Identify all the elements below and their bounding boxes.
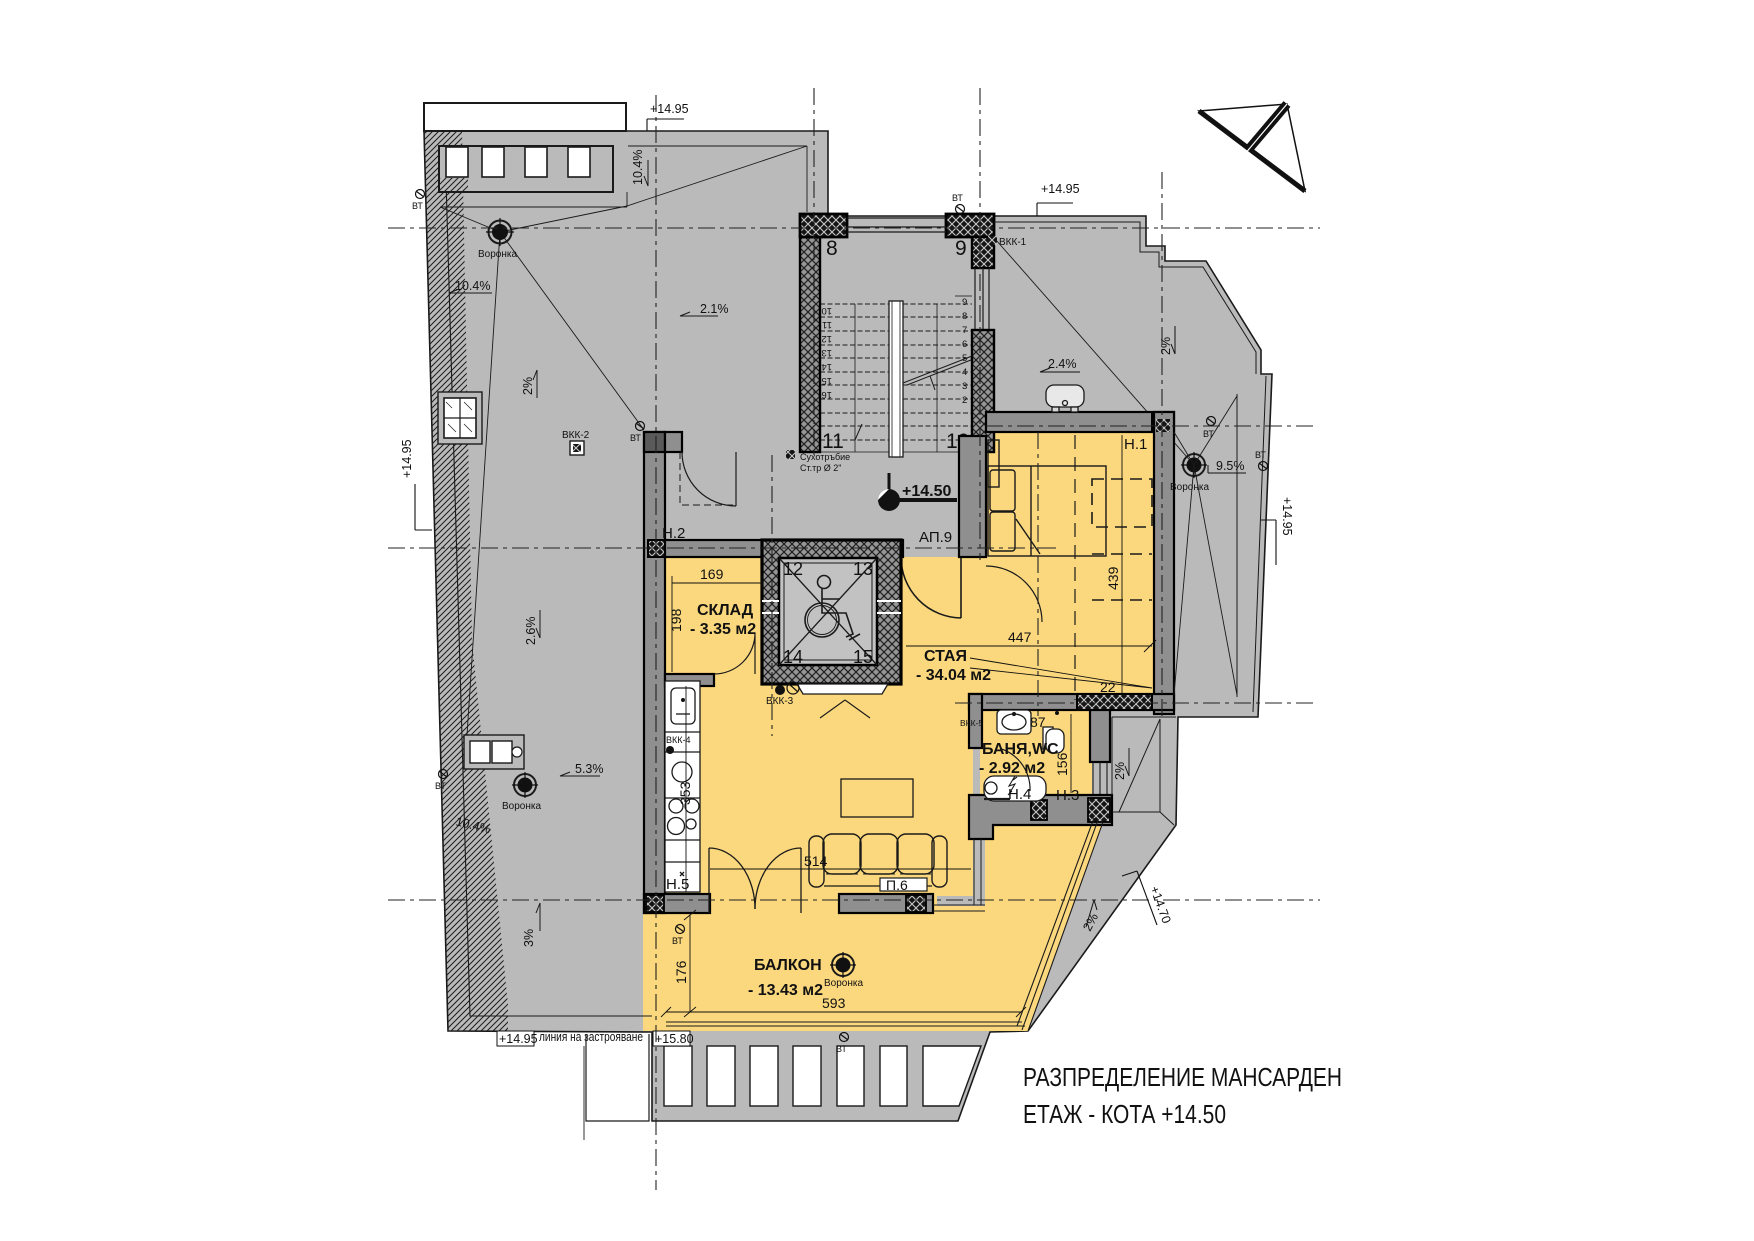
- svg-text:447: 447: [1008, 629, 1032, 645]
- svg-text:ВКК-4: ВКК-4: [666, 735, 691, 745]
- svg-text:+14.95: +14.95: [650, 102, 689, 116]
- svg-text:Н.5: Н.5: [666, 876, 689, 893]
- svg-text:ЕТАЖ - КОТА +14.50: ЕТАЖ - КОТА +14.50: [1023, 1099, 1226, 1129]
- svg-text:ВКК-1: ВКК-1: [999, 237, 1027, 248]
- svg-text:ВТ: ВТ: [1255, 450, 1266, 460]
- svg-text:- 34.04 м2: - 34.04 м2: [916, 667, 991, 684]
- svg-text:линия на застрояване: линия на застрояване: [539, 1030, 643, 1044]
- svg-text:5: 5: [962, 353, 967, 364]
- svg-text:2.6%: 2.6%: [524, 617, 538, 646]
- svg-text:8: 8: [962, 311, 967, 322]
- svg-text:Н.3: Н.3: [1056, 787, 1079, 804]
- svg-text:ВТ: ВТ: [952, 193, 963, 203]
- svg-text:ВКК-3: ВКК-3: [766, 696, 794, 707]
- svg-text:+14.95: +14.95: [400, 439, 414, 478]
- svg-text:3%: 3%: [522, 929, 536, 947]
- svg-text:14: 14: [783, 647, 803, 667]
- svg-text:ВТ: ВТ: [1203, 429, 1214, 439]
- svg-text:12: 12: [783, 559, 803, 579]
- svg-text:439: 439: [1105, 566, 1121, 590]
- svg-text:9.5%: 9.5%: [1216, 459, 1245, 473]
- svg-text:11: 11: [822, 430, 844, 453]
- svg-text:13: 13: [821, 347, 832, 358]
- svg-text:87: 87: [1030, 714, 1046, 730]
- svg-text:11: 11: [822, 319, 832, 330]
- svg-text:2: 2: [962, 395, 967, 406]
- svg-text:15: 15: [821, 375, 832, 386]
- svg-text:14: 14: [821, 361, 832, 372]
- svg-text:2%: 2%: [1159, 337, 1173, 355]
- svg-text:169: 169: [700, 566, 724, 582]
- svg-text:514: 514: [804, 853, 828, 869]
- svg-text:13: 13: [853, 559, 873, 579]
- svg-text:2.4%: 2.4%: [1048, 357, 1077, 371]
- svg-text:БАЛКОН: БАЛКОН: [754, 957, 822, 974]
- svg-text:+14.95: +14.95: [1041, 182, 1080, 196]
- svg-text:198: 198: [668, 608, 684, 632]
- svg-text:Сухотръбие: Сухотръбие: [800, 452, 850, 462]
- svg-text:ВКК-2: ВКК-2: [562, 430, 590, 441]
- svg-text:Воронка: Воронка: [502, 801, 541, 812]
- svg-text:4: 4: [962, 367, 967, 378]
- svg-text:Н.1: Н.1: [1124, 436, 1147, 453]
- svg-text:- 3.35 м2: - 3.35 м2: [690, 621, 756, 638]
- svg-text:П.6: П.6: [886, 877, 908, 893]
- svg-text:2.1%: 2.1%: [700, 302, 729, 316]
- svg-text:Н.2: Н.2: [662, 525, 685, 542]
- svg-text:+14.50: +14.50: [902, 483, 951, 500]
- svg-text:Воронка: Воронка: [1170, 482, 1209, 493]
- svg-text:8: 8: [826, 237, 838, 260]
- svg-text:15: 15: [853, 647, 873, 667]
- svg-text:176: 176: [673, 960, 689, 984]
- svg-text:РАЗПРЕДЕЛЕНИЕ МАНСАРДЕН: РАЗПРЕДЕЛЕНИЕ МАНСАРДЕН: [1023, 1062, 1342, 1092]
- svg-text:10.4%: 10.4%: [455, 279, 490, 293]
- svg-text:Воронка: Воронка: [478, 249, 517, 260]
- svg-text:10: 10: [821, 305, 832, 316]
- svg-text:3: 3: [962, 381, 967, 392]
- svg-text:10.4%: 10.4%: [631, 150, 645, 185]
- svg-text:9: 9: [955, 237, 967, 260]
- svg-text:ВТ: ВТ: [630, 433, 641, 443]
- svg-text:9: 9: [962, 297, 967, 308]
- svg-text:- 2.92 м2: - 2.92 м2: [979, 760, 1045, 777]
- svg-text:Н.4: Н.4: [1008, 786, 1031, 803]
- svg-text:593: 593: [822, 995, 846, 1011]
- svg-text:СТАЯ: СТАЯ: [924, 648, 967, 665]
- svg-text:12: 12: [821, 333, 832, 344]
- svg-text:БАНЯ,WC: БАНЯ,WC: [982, 741, 1059, 758]
- svg-text:+15.80: +15.80: [655, 1032, 694, 1046]
- svg-text:ВТ: ВТ: [412, 201, 423, 211]
- svg-text:Воронка: Воронка: [824, 978, 863, 989]
- svg-text:АП.9: АП.9: [919, 529, 952, 546]
- svg-text:+14.95: +14.95: [1280, 497, 1294, 536]
- svg-text:+14.95: +14.95: [499, 1032, 538, 1046]
- svg-text:5.3%: 5.3%: [575, 762, 604, 776]
- svg-text:7: 7: [962, 325, 967, 336]
- svg-text:2%: 2%: [1113, 762, 1127, 780]
- svg-text:353: 353: [677, 781, 693, 805]
- svg-text:22: 22: [1100, 679, 1116, 695]
- svg-text:ВТ: ВТ: [672, 936, 683, 946]
- svg-text:6: 6: [962, 339, 967, 350]
- svg-text:Ст.тр Ø 2": Ст.тр Ø 2": [800, 463, 841, 473]
- svg-text:- 13.43 м2: - 13.43 м2: [748, 982, 823, 999]
- svg-text:16: 16: [821, 389, 832, 400]
- svg-text:ВТ: ВТ: [836, 1044, 847, 1054]
- svg-text:ВКК-5: ВКК-5: [960, 718, 983, 728]
- svg-text:СКЛАД: СКЛАД: [697, 602, 754, 619]
- svg-text:ВТ: ВТ: [435, 781, 446, 791]
